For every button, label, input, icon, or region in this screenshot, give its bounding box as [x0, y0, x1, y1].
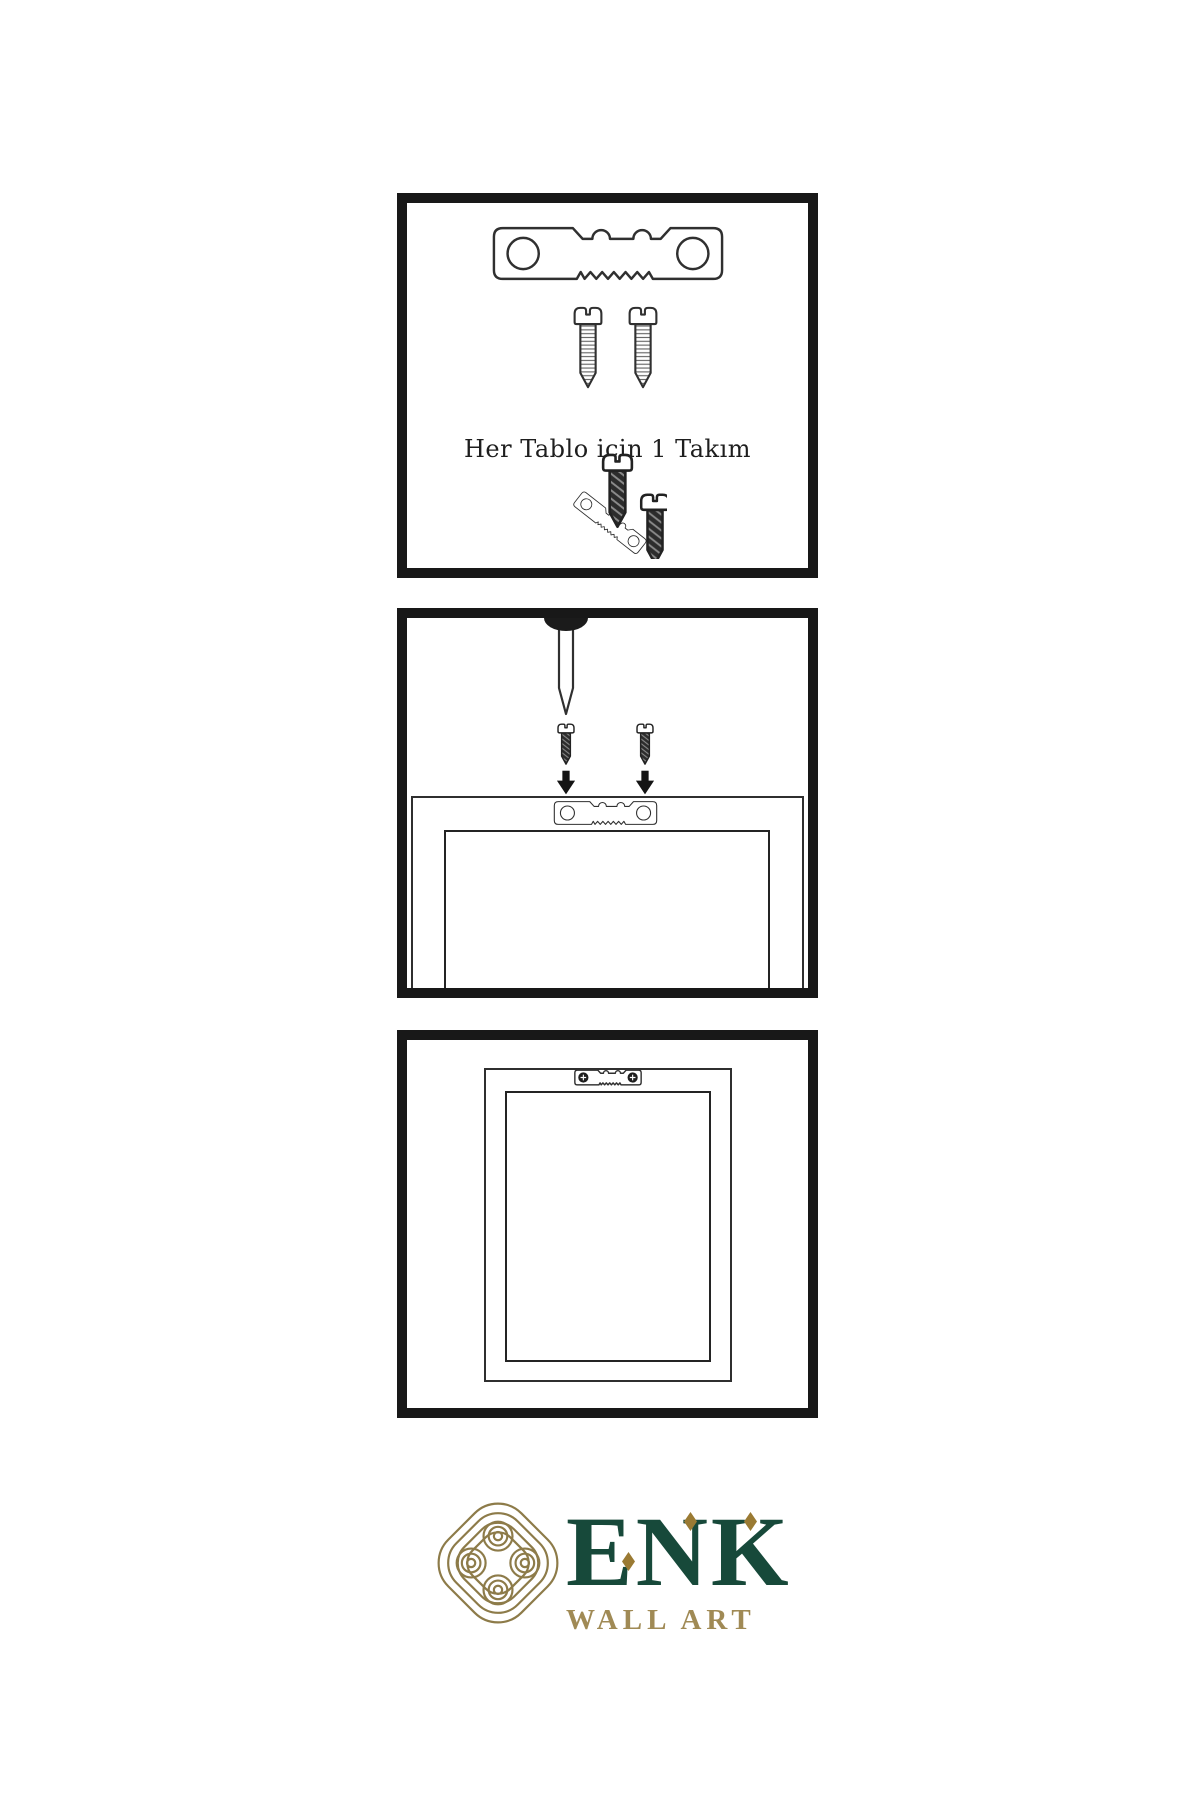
sawtooth-hanger-icon — [553, 800, 658, 826]
wall-nail-icon — [543, 618, 589, 718]
frame-back-inner — [505, 1091, 711, 1362]
down-arrow-icon — [556, 770, 576, 795]
screw-icon — [625, 305, 661, 391]
knot-logo-icon — [436, 1500, 560, 1626]
instruction-sheet: Her Tablo için 1 Takım — [0, 0, 1200, 1800]
step-2-mounting-panel — [397, 608, 818, 998]
screw-icon — [570, 305, 606, 391]
frame-back-inner — [444, 830, 770, 998]
screw-icon — [634, 722, 656, 767]
down-arrow-icon — [635, 770, 655, 795]
brand-subtitle: WALL ART — [566, 1604, 826, 1637]
sawtooth-hanger-icon — [491, 225, 725, 282]
brand-wordmark: ENK WALL ART — [566, 1506, 826, 1637]
hanger-kit-angled-icon — [567, 451, 667, 559]
screw-icon — [555, 722, 577, 767]
brand-name: ENK — [566, 1506, 826, 1598]
installed-hanger-icon — [574, 1069, 642, 1086]
step-1-kit-panel: Her Tablo için 1 Takım — [397, 193, 818, 578]
step-3-hung-frame-panel — [397, 1030, 818, 1418]
